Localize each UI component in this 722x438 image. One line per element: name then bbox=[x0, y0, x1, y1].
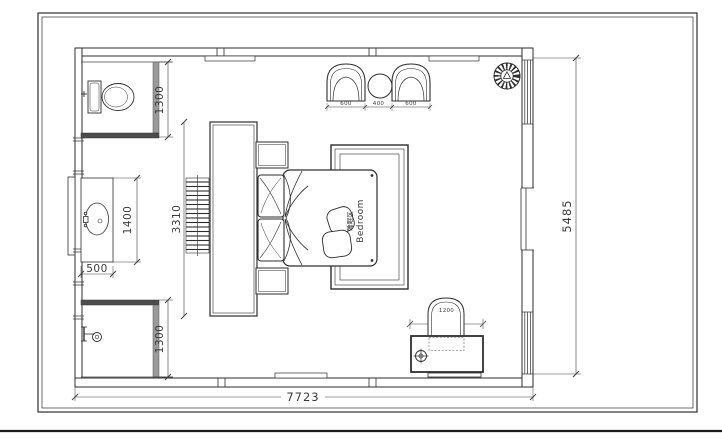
shower-head-icon bbox=[81, 327, 102, 342]
dim-label-vanity-500: 500 bbox=[86, 263, 108, 275]
pillow bbox=[258, 219, 284, 261]
dim-label-desk-1200: 1200 bbox=[439, 308, 454, 314]
nightstand-bottom bbox=[256, 268, 288, 294]
armchair-right bbox=[392, 64, 430, 101]
dim-label-table-400: 400 bbox=[373, 101, 385, 107]
dim-overall-height: 5485 bbox=[533, 55, 581, 377]
wardrobe bbox=[186, 122, 257, 316]
dim-vanity-width: 500 bbox=[78, 263, 116, 278]
dim-label-toilet-1300: 1300 bbox=[154, 86, 166, 115]
bedroom-label-zh: 睡眠区 bbox=[346, 211, 354, 231]
sink-icon bbox=[86, 203, 109, 235]
armchair-left bbox=[327, 64, 365, 101]
vanity-counter bbox=[81, 178, 113, 262]
wall-right-bay bbox=[520, 188, 534, 250]
dim-wardrobe-length: 3310 bbox=[171, 119, 187, 319]
bedroom-label-en: Bedroom bbox=[356, 199, 366, 243]
floor-plan-drawing: 1300 1400 500 bbox=[0, 0, 722, 438]
dim-overall-width: 7723 bbox=[72, 387, 536, 404]
bed: 睡眠区 Bedroom bbox=[258, 170, 377, 266]
floor-plan-canvas: 1300 1400 500 bbox=[0, 0, 722, 438]
dim-label-chair-right-600: 600 bbox=[405, 101, 417, 107]
plant-icon bbox=[494, 63, 520, 89]
dim-label-wardrobe-3310: 3310 bbox=[171, 205, 183, 234]
dim-label-overall-5485: 5485 bbox=[560, 199, 574, 232]
toilet-icon bbox=[81, 81, 134, 113]
pillow bbox=[258, 175, 284, 217]
nightstand-top bbox=[256, 142, 288, 168]
window-sill-top-left bbox=[205, 56, 255, 61]
wall-right bbox=[520, 48, 534, 387]
window-sill-bottom bbox=[275, 373, 327, 378]
dim-label-vanity-1400: 1400 bbox=[122, 206, 134, 235]
dim-vanity-length: 1400 bbox=[113, 175, 141, 265]
desk-base-strip bbox=[428, 373, 481, 377]
window-sill-top-right bbox=[429, 56, 479, 61]
window-left bbox=[68, 177, 75, 255]
side-table bbox=[368, 74, 392, 98]
shower-wall-top bbox=[81, 300, 159, 305]
dim-label-chair-left-600: 600 bbox=[340, 101, 352, 107]
toilet-room-wall-bottom bbox=[81, 133, 159, 138]
dim-label-shower-1300: 1300 bbox=[154, 325, 166, 354]
desk-chair bbox=[428, 298, 464, 338]
dim-chairs: 600 400 600 bbox=[325, 101, 432, 111]
dim-label-overall-7723: 7723 bbox=[286, 390, 319, 404]
wall-top bbox=[75, 48, 533, 61]
desk-area: 1200 bbox=[407, 298, 486, 377]
wardrobe-rail-hatch bbox=[186, 175, 209, 256]
